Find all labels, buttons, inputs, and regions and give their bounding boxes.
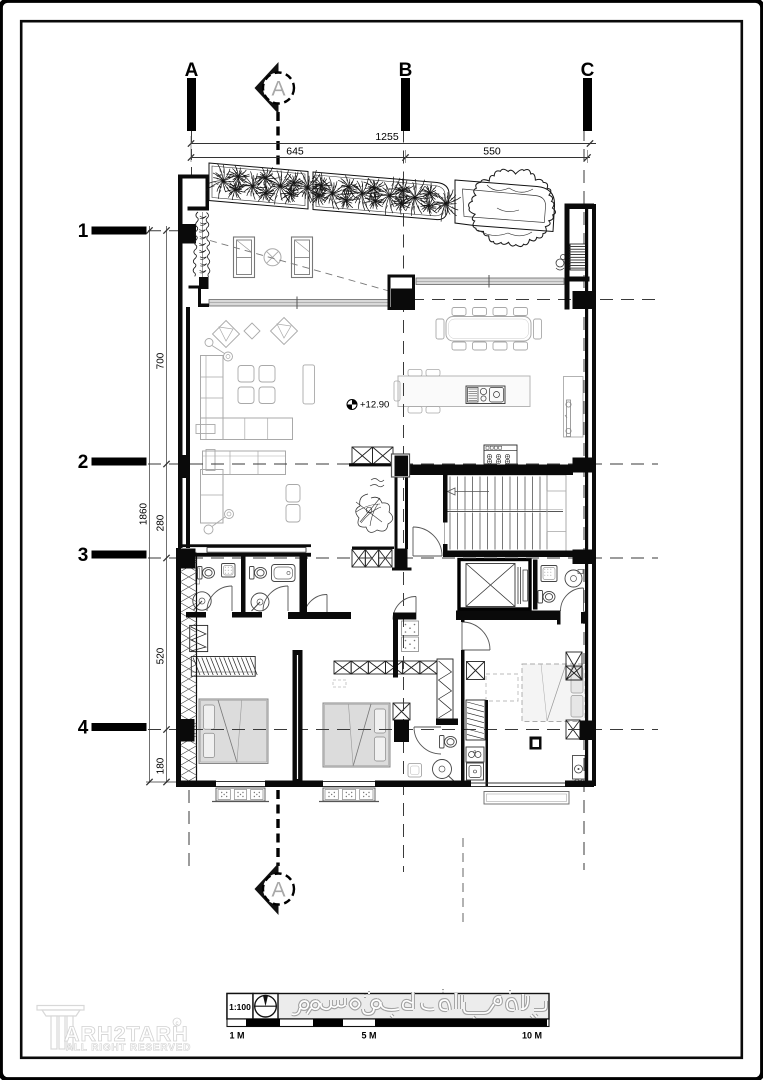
svg-text:2: 2 <box>78 452 89 473</box>
svg-text:180: 180 <box>156 757 167 774</box>
svg-text:700: 700 <box>156 352 167 369</box>
svg-text:ALL RIGHT RESERVED: ALL RIGHT RESERVED <box>66 1043 191 1054</box>
svg-text:1: 1 <box>78 221 89 242</box>
svg-text:A: A <box>271 78 285 101</box>
svg-text:1255: 1255 <box>375 131 399 143</box>
svg-text:550: 550 <box>483 146 501 158</box>
svg-text:A: A <box>271 879 285 902</box>
svg-text:1:100: 1:100 <box>229 1002 251 1012</box>
svg-text:10 M: 10 M <box>522 1031 542 1041</box>
svg-text:1 M: 1 M <box>229 1031 244 1041</box>
svg-text:4: 4 <box>78 718 89 739</box>
svg-text:5 M: 5 M <box>361 1031 376 1041</box>
svg-text:B: B <box>399 60 413 81</box>
svg-text:280: 280 <box>156 514 167 531</box>
svg-text:645: 645 <box>286 146 304 158</box>
svg-text:A: A <box>185 60 199 81</box>
svg-text:+12.90: +12.90 <box>360 400 389 411</box>
svg-text:c: c <box>176 1021 179 1027</box>
svg-text:520: 520 <box>156 647 167 664</box>
svg-text:1860: 1860 <box>139 502 150 525</box>
svg-text:C: C <box>581 60 595 81</box>
svg-text:3: 3 <box>78 545 89 566</box>
